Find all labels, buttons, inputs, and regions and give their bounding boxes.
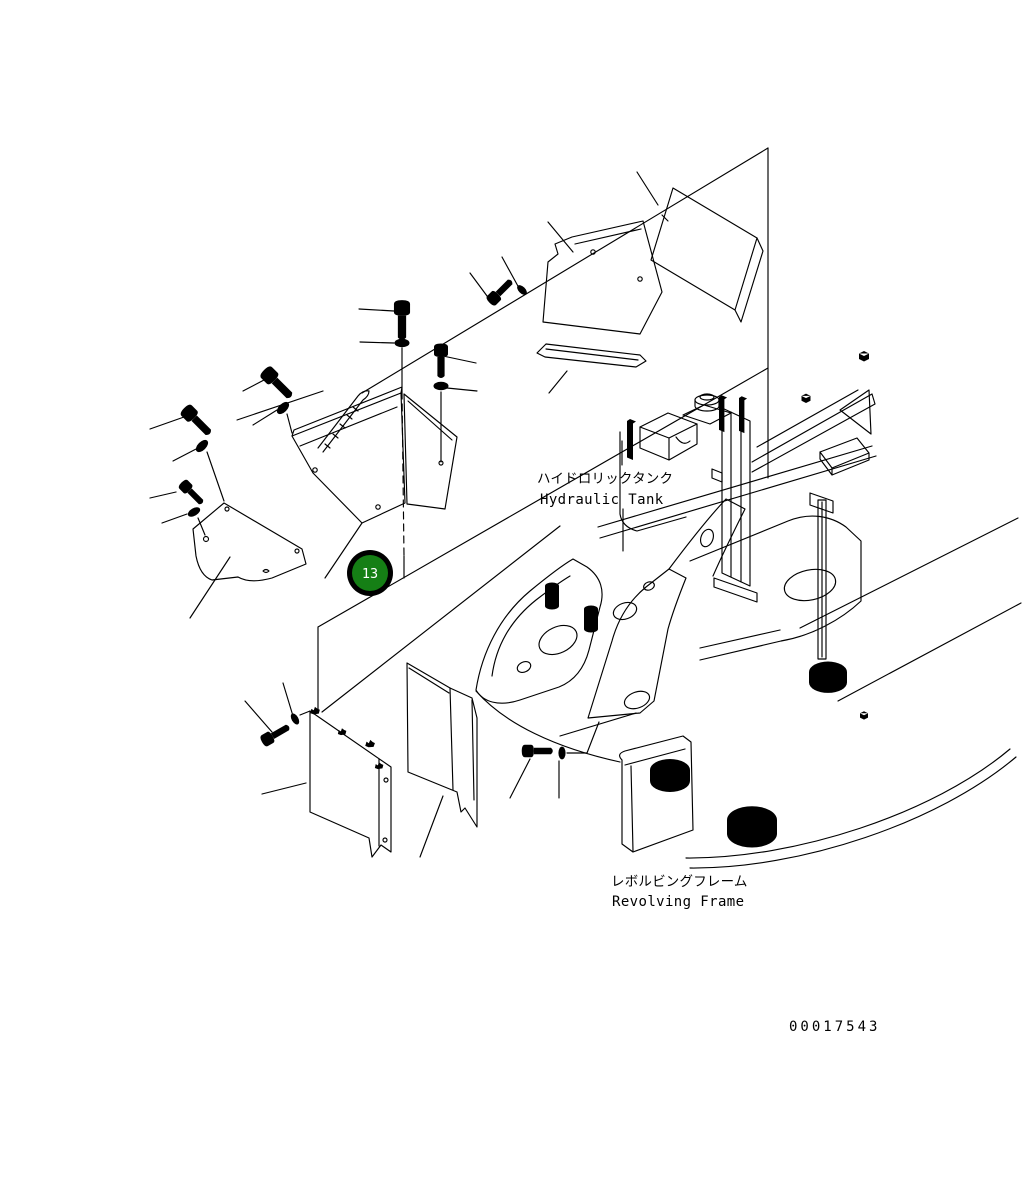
post-icon [719,395,727,432]
frame-mount-icon [650,759,690,792]
cube-bolt-icon [860,711,868,719]
tank-mount-boss-icon [584,606,598,633]
revolving-frame [476,446,1021,868]
frame-mount-icon [727,806,777,847]
side-cover-panel [404,394,457,509]
washer-icon [186,505,201,518]
bolt-icon [434,344,448,379]
projection-lines [318,148,768,712]
bolt-icon [394,300,410,340]
drawing-number: 00017543 [789,1019,880,1035]
parts-diagram-canvas: 13 ハイドロリックタンク Hydraulic Tank レボルビングフレーム … [0,0,1028,1185]
washer-icon [289,712,301,726]
post-icon [627,419,636,460]
cube-bolt-icon [802,394,811,403]
washer-icon [558,747,565,760]
bolt-icon [179,403,215,439]
lower-left-cover-panel [193,503,306,581]
bolt-icon [259,721,292,747]
frame-mount-icon [809,662,847,693]
callout-balloon-13[interactable]: 13 [347,550,393,596]
lower-center-panel-plain [407,663,477,827]
bolt-icon [259,365,297,403]
washer-icon [395,339,410,347]
parts-diagram-page: 13 ハイドロリックタンク Hydraulic Tank レボルビングフレーム … [0,0,1028,1185]
revolving-frame-label-jp: レボルビングフレーム [611,874,748,890]
washer-icon [434,382,449,390]
callout-number: 13 [362,566,378,582]
post-icon [739,396,747,433]
washer-icon [194,438,211,455]
hydraulic-tank-label-en: Hydraulic Tank [540,492,664,508]
clip-icon [364,739,375,748]
clip-icon [374,761,384,770]
bolt-icon [522,745,553,758]
hydraulic-tank-label-jp: ハイドロリックタンク [537,471,673,487]
bolt-icon [177,478,206,507]
center-cover-panel [292,387,405,523]
lower-center-panel-with-clips [309,706,391,857]
labels: ハイドロリックタンク Hydraulic Tank レボルビングフレーム Rev… [537,471,880,1035]
flat-bracket-strip [537,344,646,367]
clip-icon [309,706,321,716]
cube-bolt-icon [859,351,869,362]
tank-mount-boss-icon [545,583,559,610]
clip-icon [337,727,347,736]
revolving-frame-label-en: Revolving Frame [612,894,744,910]
